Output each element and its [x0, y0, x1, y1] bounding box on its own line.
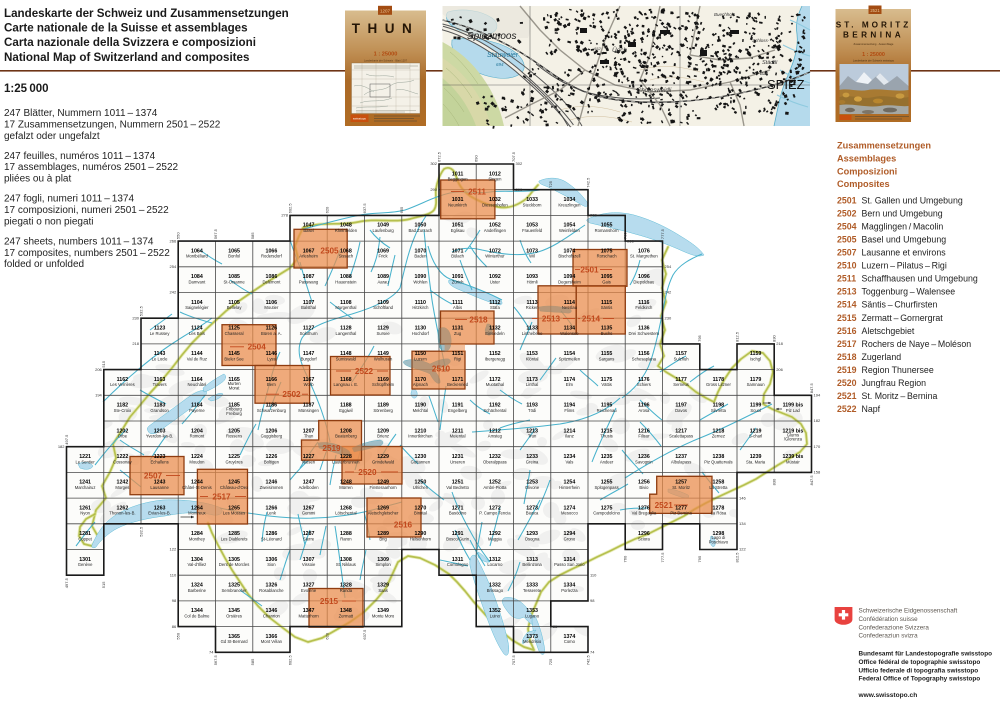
- svg-text:Arosa: Arosa: [638, 408, 650, 413]
- svg-text:Schiers: Schiers: [637, 382, 651, 387]
- svg-text:St. Moritz: St. Moritz: [672, 485, 690, 490]
- svg-text:Bieler See: Bieler See: [224, 357, 244, 362]
- svg-text:Alpnach: Alpnach: [413, 382, 429, 387]
- svg-text:585: 585: [250, 658, 255, 665]
- svg-text:2507: 2507: [144, 471, 163, 480]
- svg-text:Linthebene: Linthebene: [522, 331, 543, 336]
- svg-text:THUN: THUN: [352, 21, 420, 36]
- svg-text:Basel: Basel: [303, 228, 314, 233]
- svg-text:2521: 2521: [870, 8, 880, 13]
- svg-text:2522: 2522: [837, 404, 857, 414]
- svg-text:17 assemblages, numéros 2501 –: 17 assemblages, numéros 2501 – 2522: [4, 162, 179, 173]
- svg-text:725: 725: [548, 658, 553, 665]
- svg-text:Gross Litzner: Gross Litzner: [706, 382, 732, 387]
- svg-text:230: 230: [665, 315, 672, 320]
- svg-text:Gemmi: Gemmi: [302, 511, 316, 516]
- svg-text:Locarno: Locarno: [487, 562, 503, 567]
- svg-text:2501: 2501: [837, 195, 857, 205]
- svg-text:Morges: Morges: [115, 485, 129, 490]
- svg-text:/Glorenza: /Glorenza: [784, 437, 803, 442]
- svg-text:Rochers de Naye – Moléson: Rochers de Naye – Moléson: [862, 339, 972, 349]
- svg-text:Lenk: Lenk: [267, 511, 277, 516]
- svg-text:742.5: 742.5: [585, 177, 590, 188]
- svg-text:Poschiavo: Poschiavo: [709, 540, 729, 545]
- svg-text:Trun: Trun: [528, 434, 537, 439]
- svg-text:Spiezmoos: Spiezmoos: [467, 31, 516, 42]
- svg-text:550: 550: [176, 232, 181, 239]
- svg-text:Marchairuz: Marchairuz: [75, 485, 96, 490]
- svg-text:gefalzt oder ungefalzt: gefalzt oder ungefalzt: [4, 131, 100, 142]
- svg-text:194: 194: [95, 393, 102, 398]
- svg-text:Ilanz: Ilanz: [565, 434, 574, 439]
- svg-text:Sargans: Sargans: [599, 357, 615, 362]
- svg-text:Silvretta: Silvretta: [711, 408, 727, 413]
- svg-text:Feldkirch: Feldkirch: [635, 305, 653, 310]
- svg-text:Sursee: Sursee: [376, 331, 390, 336]
- svg-text:Sumiswald: Sumiswald: [336, 357, 357, 362]
- svg-text:Bivio: Bivio: [639, 485, 649, 490]
- svg-text:Brienz: Brienz: [377, 434, 389, 439]
- svg-text:497.5: 497.5: [64, 577, 69, 588]
- svg-text:piegati o non piegati: piegati o non piegati: [4, 216, 94, 227]
- svg-text:Stäfa: Stäfa: [490, 305, 500, 310]
- svg-text:Helsenhorn: Helsenhorn: [410, 536, 432, 541]
- svg-text:760: 760: [623, 232, 628, 239]
- svg-text:2516: 2516: [837, 326, 857, 336]
- svg-text:Bischofszell: Bischofszell: [558, 254, 580, 259]
- svg-text:Bellelay: Bellelay: [227, 305, 243, 310]
- svg-text:17 composites, numbers 2501 –: 17 composites, numbers 2501 – 2522: [4, 248, 170, 259]
- svg-text:Bellinzona: Bellinzona: [522, 562, 542, 567]
- svg-text:847.5: 847.5: [809, 383, 814, 394]
- svg-text:Zusammensetzungen: Zusammensetzungen: [837, 141, 931, 151]
- svg-text:Dent de Morcles: Dent de Morcles: [219, 562, 250, 567]
- svg-text:Zermatt – Gornergrat: Zermatt – Gornergrat: [862, 313, 944, 323]
- svg-text:Confédération suisse: Confédération suisse: [859, 616, 919, 623]
- svg-text:Les Diablerets: Les Diablerets: [221, 536, 248, 541]
- svg-text:Balsthal: Balsthal: [301, 305, 316, 310]
- svg-text:742.5: 742.5: [585, 655, 590, 666]
- svg-text:Luzern: Luzern: [414, 357, 427, 362]
- svg-text:Guttannen: Guttannen: [411, 459, 431, 464]
- svg-text:BERNINA: BERNINA: [843, 31, 904, 40]
- svg-text:206: 206: [776, 367, 783, 372]
- svg-text:Urseren: Urseren: [450, 459, 466, 464]
- svg-text:110: 110: [170, 572, 177, 577]
- svg-text:247 feuilles, numéros 1011 – 1: 247 feuilles, numéros 1011 – 1374: [4, 151, 156, 162]
- svg-text:Zürich: Zürich: [452, 279, 464, 284]
- svg-text:Murgenthal: Murgenthal: [335, 305, 356, 310]
- svg-text:2518: 2518: [469, 315, 488, 324]
- svg-text:182: 182: [814, 418, 821, 423]
- svg-text:Brig: Brig: [379, 536, 387, 541]
- svg-text:Federal Office of Topography s: Federal Office of Topography swisstopo: [859, 676, 981, 683]
- svg-text:Reichenau: Reichenau: [597, 408, 618, 413]
- svg-text:Lötschental: Lötschental: [335, 511, 356, 516]
- svg-text:Worb: Worb: [304, 382, 315, 387]
- svg-text:folded or unfolded: folded or unfolded: [4, 259, 84, 270]
- svg-text:Mendrisio: Mendrisio: [523, 639, 542, 644]
- svg-text:Rosablanche: Rosablanche: [259, 588, 284, 593]
- svg-text:Eglisau: Eglisau: [451, 228, 465, 233]
- svg-text:Landeskarte der Schweiz · Blat: Landeskarte der Schweiz · Blatt 1207: [364, 59, 408, 63]
- svg-text:620: 620: [325, 206, 330, 213]
- svg-text:Saas: Saas: [378, 588, 388, 593]
- svg-text:Diepoldsau: Diepoldsau: [633, 279, 655, 284]
- svg-text:Les Verrières: Les Verrières: [110, 382, 135, 387]
- svg-text:585: 585: [250, 232, 255, 239]
- svg-text:Bad: Bad: [760, 71, 769, 76]
- svg-text:Piz Lad: Piz Lad: [786, 408, 801, 413]
- svg-text:Val-d’Illiez: Val-d’Illiez: [188, 562, 207, 567]
- svg-text:Les Mosses: Les Mosses: [223, 511, 245, 516]
- svg-text:Städtli: Städtli: [762, 60, 778, 66]
- svg-text:302: 302: [516, 161, 523, 166]
- svg-text:2502: 2502: [837, 208, 857, 218]
- svg-text:Gais: Gais: [602, 279, 611, 284]
- svg-text:Münsingen: Münsingen: [298, 408, 319, 413]
- svg-text:2513: 2513: [542, 314, 561, 323]
- svg-text:Office fédéral de topographie: Office fédéral de topographie swisstopo: [859, 659, 981, 666]
- svg-text:2505: 2505: [320, 246, 339, 255]
- svg-text:Scuol: Scuol: [750, 408, 761, 413]
- svg-text:Büren a. A.: Büren a. A.: [261, 331, 282, 336]
- svg-text:2515: 2515: [320, 597, 339, 606]
- svg-text:795: 795: [697, 334, 702, 341]
- svg-text:Aletschgletscher: Aletschgletscher: [368, 511, 399, 516]
- svg-text:637.5: 637.5: [362, 203, 367, 214]
- svg-text:swisstopo: swisstopo: [353, 117, 367, 121]
- svg-text:Finsteraarhorn: Finsteraarhorn: [369, 485, 397, 490]
- svg-text:847.5: 847.5: [809, 475, 814, 486]
- svg-text:Einsiedeln: Einsiedeln: [485, 331, 505, 336]
- svg-text:Bern und Umgebung: Bern und Umgebung: [862, 208, 943, 218]
- svg-text:567.5: 567.5: [213, 655, 218, 666]
- svg-text:Basel und Umgebung: Basel und Umgebung: [862, 235, 947, 245]
- svg-text:Vättis: Vättis: [601, 382, 611, 387]
- svg-text:Wohlen: Wohlen: [413, 279, 428, 284]
- svg-text:Beggingen: Beggingen: [448, 177, 469, 182]
- svg-text:Walensee: Walensee: [560, 331, 579, 336]
- svg-text:Diessenhofen: Diessenhofen: [482, 202, 508, 207]
- svg-text:Château-d’Oex: Château-d’Oex: [220, 485, 249, 490]
- svg-text:Tesserete: Tesserete: [523, 588, 542, 593]
- svg-text:Comologno: Comologno: [447, 562, 469, 567]
- svg-text:247 sheets, numbers 1011 – 137: 247 sheets, numbers 1011 – 1374: [4, 236, 154, 247]
- svg-text:Thusis: Thusis: [600, 434, 612, 439]
- svg-text:Serneus: Serneus: [673, 382, 689, 387]
- svg-text:Filisur: Filisur: [638, 434, 650, 439]
- svg-text:Simplon: Simplon: [376, 562, 392, 567]
- svg-text:S-charl: S-charl: [749, 434, 762, 439]
- svg-text:Delémont: Delémont: [262, 279, 281, 284]
- svg-text:Carta nazionale della Svizzera: Carta nazionale della Svizzera e composi…: [4, 36, 256, 49]
- svg-text:Lausanne et environs: Lausanne et environs: [862, 248, 947, 258]
- svg-text:Composizioni: Composizioni: [837, 166, 897, 176]
- svg-text:17 Zusammensetzungen, Nummern: 17 Zusammensetzungen, Nummern 2501 – 252…: [4, 119, 221, 130]
- svg-text:672.5: 672.5: [436, 151, 441, 162]
- svg-text:812.5: 812.5: [734, 331, 739, 342]
- svg-text:Thonon-les-B.: Thonon-les-B.: [109, 511, 135, 516]
- svg-text:2522: 2522: [355, 367, 374, 376]
- svg-text:Davos: Davos: [675, 408, 687, 413]
- svg-text:Rodersdorf: Rodersdorf: [261, 254, 283, 259]
- svg-text:Samnaun: Samnaun: [747, 382, 766, 387]
- svg-text:Niesen: Niesen: [302, 459, 316, 464]
- svg-text:Schesaplana: Schesaplana: [632, 357, 657, 362]
- svg-text:Schloss-: Schloss-: [752, 38, 770, 43]
- svg-text:Eggiwil: Eggiwil: [339, 408, 352, 413]
- svg-text:74: 74: [209, 650, 214, 655]
- svg-text:2520: 2520: [837, 378, 857, 388]
- svg-text:St-Léonard: St-Léonard: [261, 536, 282, 541]
- svg-text:Melchtal: Melchtal: [413, 408, 429, 413]
- svg-text:725: 725: [548, 180, 553, 187]
- svg-text:Assemblages: Assemblages: [837, 153, 896, 163]
- svg-text:1 : 25000: 1 : 25000: [374, 52, 398, 58]
- svg-text:2520: 2520: [358, 468, 377, 477]
- svg-text:Schöftland: Schöftland: [373, 305, 393, 310]
- svg-text:SPIEZ: SPIEZ: [767, 77, 805, 92]
- svg-text:Damvant: Damvant: [189, 279, 207, 284]
- svg-text:266: 266: [627, 238, 634, 243]
- svg-text:Composites: Composites: [837, 179, 890, 189]
- svg-text:Payerne: Payerne: [189, 408, 205, 413]
- svg-text:290: 290: [430, 187, 437, 192]
- svg-text:Piz Bernina: Piz Bernina: [670, 511, 692, 516]
- svg-text:Andelfingen: Andelfingen: [484, 228, 507, 233]
- svg-text:247 Blätter, Nummern 1011 – 13: 247 Blätter, Nummern 1011 – 1374: [4, 108, 158, 119]
- svg-text:Grono: Grono: [564, 536, 576, 541]
- svg-text:Mont Vélan: Mont Vélan: [261, 639, 283, 644]
- svg-text:515: 515: [101, 360, 106, 367]
- svg-text:Scalettapass: Scalettapass: [669, 434, 693, 439]
- svg-text:Val Bregaglia: Val Bregaglia: [632, 511, 657, 516]
- svg-text:Le Sentier: Le Sentier: [76, 459, 96, 464]
- svg-text:2510: 2510: [837, 261, 857, 271]
- svg-text:Nyon: Nyon: [80, 511, 90, 516]
- svg-text:795: 795: [697, 555, 702, 562]
- svg-text:Hörnli: Hörnli: [527, 279, 538, 284]
- svg-text:Region Thunersee: Region Thunersee: [862, 365, 934, 375]
- svg-text:Sta. Maria: Sta. Maria: [746, 459, 766, 464]
- svg-text:707.5: 707.5: [511, 151, 516, 162]
- svg-text:515: 515: [101, 581, 106, 588]
- svg-text:Meiental: Meiental: [450, 434, 466, 439]
- svg-text:Säntis: Säntis: [601, 305, 613, 310]
- svg-text:122: 122: [170, 547, 177, 552]
- svg-text:Spitzmeilen: Spitzmeilen: [559, 357, 581, 362]
- svg-text:Langenthal: Langenthal: [336, 331, 357, 336]
- svg-text:690: 690: [474, 155, 479, 162]
- svg-text:Klöntal: Klöntal: [526, 357, 539, 362]
- svg-text:Sörenberg: Sörenberg: [373, 408, 393, 413]
- svg-text:218: 218: [132, 341, 139, 346]
- svg-text:Sciora: Sciora: [638, 536, 651, 541]
- svg-text:Nesslau: Nesslau: [562, 305, 578, 310]
- svg-text:2518: 2518: [837, 352, 857, 362]
- svg-text:158: 158: [814, 470, 821, 475]
- svg-text:Choresweidli: Choresweidli: [637, 88, 672, 94]
- svg-text:Adelboden: Adelboden: [299, 485, 320, 490]
- svg-text:Toggenburg – Walensee: Toggenburg – Walensee: [862, 287, 956, 297]
- svg-text:497.5: 497.5: [64, 434, 69, 445]
- svg-text:Lugano: Lugano: [525, 614, 540, 619]
- svg-text:254: 254: [170, 264, 177, 269]
- svg-text:290: 290: [516, 187, 523, 192]
- svg-text:Buechholz: Buechholz: [714, 12, 736, 17]
- svg-text:Hitzkirch: Hitzkirch: [412, 305, 429, 310]
- svg-text:655: 655: [399, 206, 404, 213]
- svg-text:Montreux: Montreux: [188, 511, 206, 516]
- svg-text:Ricken: Ricken: [526, 305, 539, 310]
- svg-text:Müstair: Müstair: [786, 459, 800, 464]
- svg-text:Innertkirchen: Innertkirchen: [408, 434, 433, 439]
- svg-text:567.5: 567.5: [213, 228, 218, 239]
- svg-text:Guggisberg: Guggisberg: [261, 434, 283, 439]
- svg-text:Grandson: Grandson: [150, 408, 169, 413]
- svg-text:Moudon: Moudon: [189, 459, 205, 464]
- svg-text:Muotathal: Muotathal: [486, 382, 504, 387]
- svg-text:242: 242: [170, 290, 177, 295]
- svg-text:Gd St-Bernard: Gd St-Bernard: [221, 639, 249, 644]
- svg-text:Sissach: Sissach: [339, 254, 354, 259]
- svg-text:74: 74: [590, 650, 595, 655]
- svg-text:Chasseral: Chasseral: [225, 331, 244, 336]
- svg-text:Singen: Singen: [488, 177, 502, 182]
- svg-text:National Map of Switzerland an: National Map of Switzerland and composit…: [4, 51, 249, 64]
- svg-text:2511: 2511: [837, 274, 856, 284]
- svg-text:Montbéliard: Montbéliard: [186, 254, 209, 259]
- svg-text:830: 830: [772, 478, 777, 485]
- svg-text:Langnau i. E.: Langnau i. E.: [334, 382, 359, 387]
- svg-text:Oberalppass: Oberalppass: [483, 459, 507, 464]
- svg-text:Gruyères: Gruyères: [225, 459, 242, 464]
- svg-text:Buchs: Buchs: [601, 331, 613, 336]
- svg-text:Zweisimmen: Zweisimmen: [260, 485, 284, 490]
- svg-text:P. Campo Tencia: P. Campo Tencia: [479, 511, 511, 516]
- svg-text:1207: 1207: [380, 8, 391, 13]
- svg-text:134: 134: [739, 521, 746, 526]
- svg-text:Bundesamt für Landestopografie: Bundesamt für Landestopografie swisstopo: [859, 651, 993, 658]
- svg-text:Aletschgebiet: Aletschgebiet: [862, 326, 915, 336]
- svg-text:ST. MORITZ: ST. MORITZ: [836, 21, 911, 30]
- svg-text:Val de Ruz: Val de Ruz: [187, 357, 207, 362]
- svg-text:602.5: 602.5: [287, 655, 292, 666]
- svg-text:Randa: Randa: [340, 588, 353, 593]
- svg-text:Landeskarte der Schweiz und Zu: Landeskarte der Schweiz und Zusammensetz…: [4, 7, 289, 20]
- svg-text:2519: 2519: [837, 365, 857, 375]
- svg-text:Schächental: Schächental: [483, 408, 506, 413]
- svg-text:122: 122: [739, 547, 746, 552]
- svg-text:2516: 2516: [394, 520, 413, 529]
- svg-text:707.5: 707.5: [511, 655, 516, 666]
- svg-text:620: 620: [325, 632, 330, 639]
- svg-text:Evian-les-B.: Evian-les-B.: [148, 511, 171, 516]
- svg-text:777.5: 777.5: [660, 228, 665, 239]
- svg-text:Evolène: Evolène: [301, 588, 317, 593]
- svg-text:Moutier: Moutier: [264, 305, 279, 310]
- svg-text:Travers: Travers: [153, 382, 167, 387]
- svg-text:Weinfelden: Weinfelden: [559, 228, 581, 233]
- svg-text:2521: 2521: [837, 391, 857, 401]
- svg-text:Linthal: Linthal: [526, 382, 538, 387]
- svg-text:86: 86: [172, 624, 177, 629]
- svg-text:830: 830: [772, 334, 777, 341]
- svg-text:Savognin: Savognin: [635, 459, 653, 464]
- svg-text:254: 254: [665, 264, 672, 269]
- svg-text:550: 550: [176, 632, 181, 639]
- svg-text:98: 98: [172, 598, 177, 603]
- svg-text:Rheinfelden: Rheinfelden: [335, 228, 358, 233]
- svg-text:Thun: Thun: [304, 434, 314, 439]
- svg-text:Ulrichen: Ulrichen: [413, 485, 429, 490]
- svg-text:Val Bedretto: Val Bedretto: [446, 485, 469, 490]
- svg-text:St. Niklaus: St. Niklaus: [336, 562, 356, 567]
- svg-text:Romanshorn: Romanshorn: [595, 228, 620, 233]
- svg-text:Wil: Wil: [529, 254, 535, 259]
- svg-text:Neunkirch: Neunkirch: [448, 202, 468, 207]
- svg-text:Uster: Uster: [490, 279, 501, 284]
- svg-text:2504: 2504: [837, 221, 857, 231]
- svg-text:2510: 2510: [432, 364, 451, 373]
- svg-text:278: 278: [590, 213, 597, 218]
- svg-text:Zernez: Zernez: [712, 434, 725, 439]
- svg-text:pliées ou à plat: pliées ou à plat: [4, 174, 71, 185]
- svg-text:Confederazione Svizzera: Confederazione Svizzera: [859, 624, 930, 631]
- svg-text:Grindelwald: Grindelwald: [372, 459, 395, 464]
- svg-text:Vals: Vals: [565, 459, 573, 464]
- svg-text:Tödi: Tödi: [528, 408, 536, 413]
- svg-text:Mesocco: Mesocco: [561, 511, 578, 516]
- svg-text:Üech: Üech: [612, 46, 628, 54]
- svg-text:194: 194: [814, 393, 821, 398]
- svg-text:812.5: 812.5: [734, 552, 739, 563]
- svg-text:Jungfrau Region: Jungfrau Region: [862, 378, 927, 388]
- svg-text:Laufenburg: Laufenburg: [372, 228, 394, 233]
- svg-text:Schaffhausen und Umgebung: Schaffhausen und Umgebung: [862, 274, 978, 284]
- svg-text:Campodolcino: Campodolcino: [593, 511, 620, 516]
- svg-text:Stauweier: Stauweier: [487, 52, 519, 59]
- svg-text:Bonfol: Bonfol: [228, 254, 240, 259]
- svg-text:Porlezza: Porlezza: [561, 588, 578, 593]
- svg-text:602.5: 602.5: [287, 203, 292, 214]
- svg-text:La Rösa: La Rösa: [711, 511, 727, 516]
- svg-text:Zermatt: Zermatt: [339, 614, 354, 619]
- svg-text:Kreuzlingen: Kreuzlingen: [558, 202, 581, 207]
- svg-text:Carte nationale de la Suisse e: Carte nationale de la Suisse et assembla…: [4, 22, 248, 35]
- svg-text:Winterthur: Winterthur: [485, 254, 505, 259]
- svg-text:Lyss: Lyss: [267, 357, 275, 362]
- svg-text:Le Russey: Le Russey: [150, 331, 171, 336]
- svg-text:Ischgl: Ischgl: [750, 357, 761, 362]
- svg-text:Ambri-Piotta: Ambri-Piotta: [483, 485, 507, 490]
- svg-text:Orsières: Orsières: [226, 614, 242, 619]
- svg-text:Schweizerische Eidgenossenscha: Schweizerische Eidgenossenschaft: [859, 608, 958, 615]
- svg-text:Orbe: Orbe: [118, 434, 128, 439]
- svg-text:2514: 2514: [837, 300, 857, 310]
- svg-text:Confederaziun svizra: Confederaziun svizra: [859, 633, 919, 640]
- svg-text:Ste-Croix: Ste-Croix: [114, 408, 132, 413]
- svg-text:637.5: 637.5: [362, 629, 367, 640]
- svg-text:Les Bois: Les Bois: [189, 331, 205, 336]
- svg-text:Greina: Greina: [526, 459, 539, 464]
- svg-text:Le Locle: Le Locle: [152, 357, 169, 362]
- svg-text:760: 760: [623, 555, 628, 562]
- svg-text:1:25 000: 1:25 000: [4, 83, 49, 95]
- svg-text:Rigi: Rigi: [454, 357, 461, 362]
- svg-text:Hauenstein: Hauenstein: [335, 279, 357, 284]
